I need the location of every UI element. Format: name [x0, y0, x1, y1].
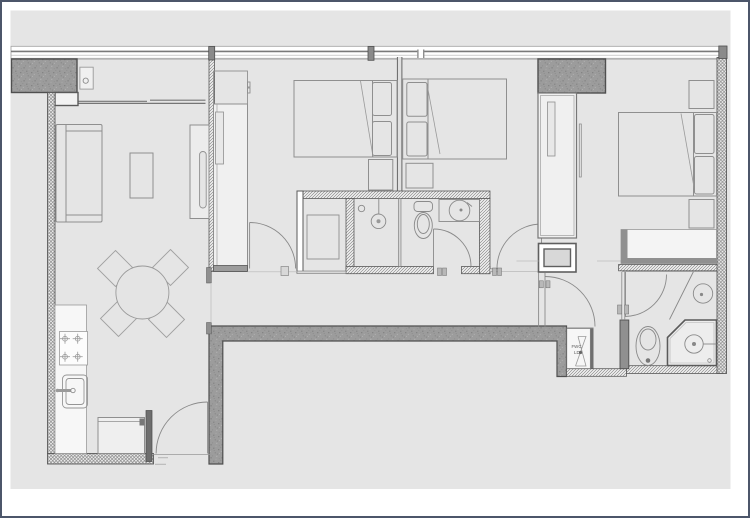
svg-text:LD: LD	[574, 350, 580, 355]
svg-text:FWC: FWC	[572, 344, 582, 349]
